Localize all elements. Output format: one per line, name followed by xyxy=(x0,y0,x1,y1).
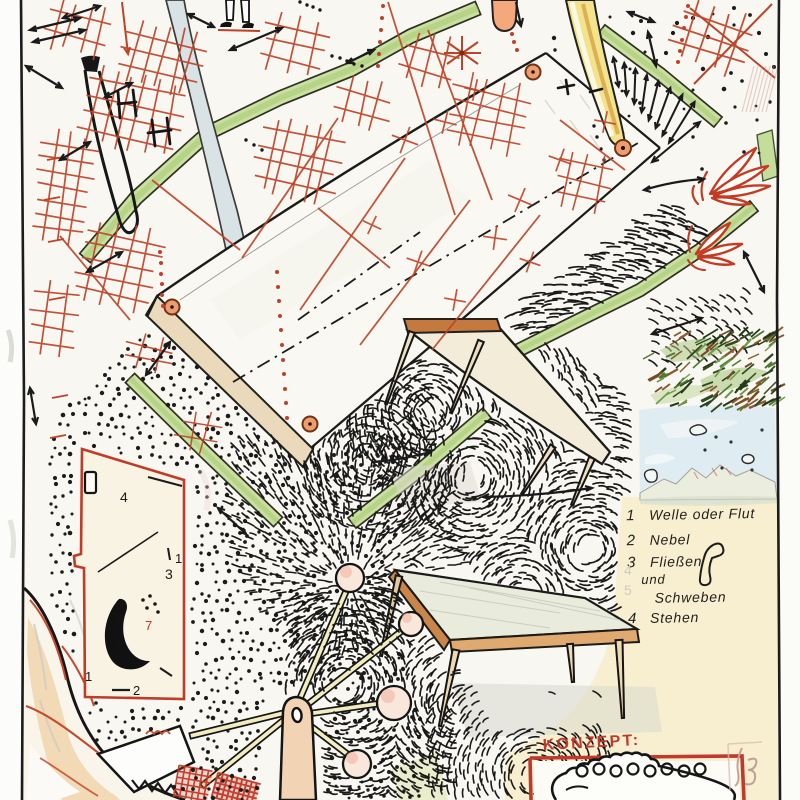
svg-text:7: 7 xyxy=(145,618,152,633)
svg-text:1: 1 xyxy=(626,507,635,524)
svg-text:und: und xyxy=(641,572,665,587)
svg-text:Fließen: Fließen xyxy=(650,553,703,570)
svg-text:5: 5 xyxy=(624,582,632,598)
svg-text:1: 1 xyxy=(85,669,92,684)
svg-text:3: 3 xyxy=(165,566,173,582)
svg-text:2: 2 xyxy=(626,532,636,549)
svg-text:Welle oder Flut: Welle oder Flut xyxy=(649,505,755,523)
svg-text:4: 4 xyxy=(624,562,632,578)
svg-text:2: 2 xyxy=(133,683,140,698)
svg-text:Schweben: Schweben xyxy=(655,589,727,606)
svg-text:1: 1 xyxy=(175,551,182,566)
svg-text:Stehen: Stehen xyxy=(650,609,699,626)
svg-text:4: 4 xyxy=(120,489,128,505)
svg-text:4: 4 xyxy=(628,610,637,627)
svg-text:Nebel: Nebel xyxy=(650,531,691,548)
